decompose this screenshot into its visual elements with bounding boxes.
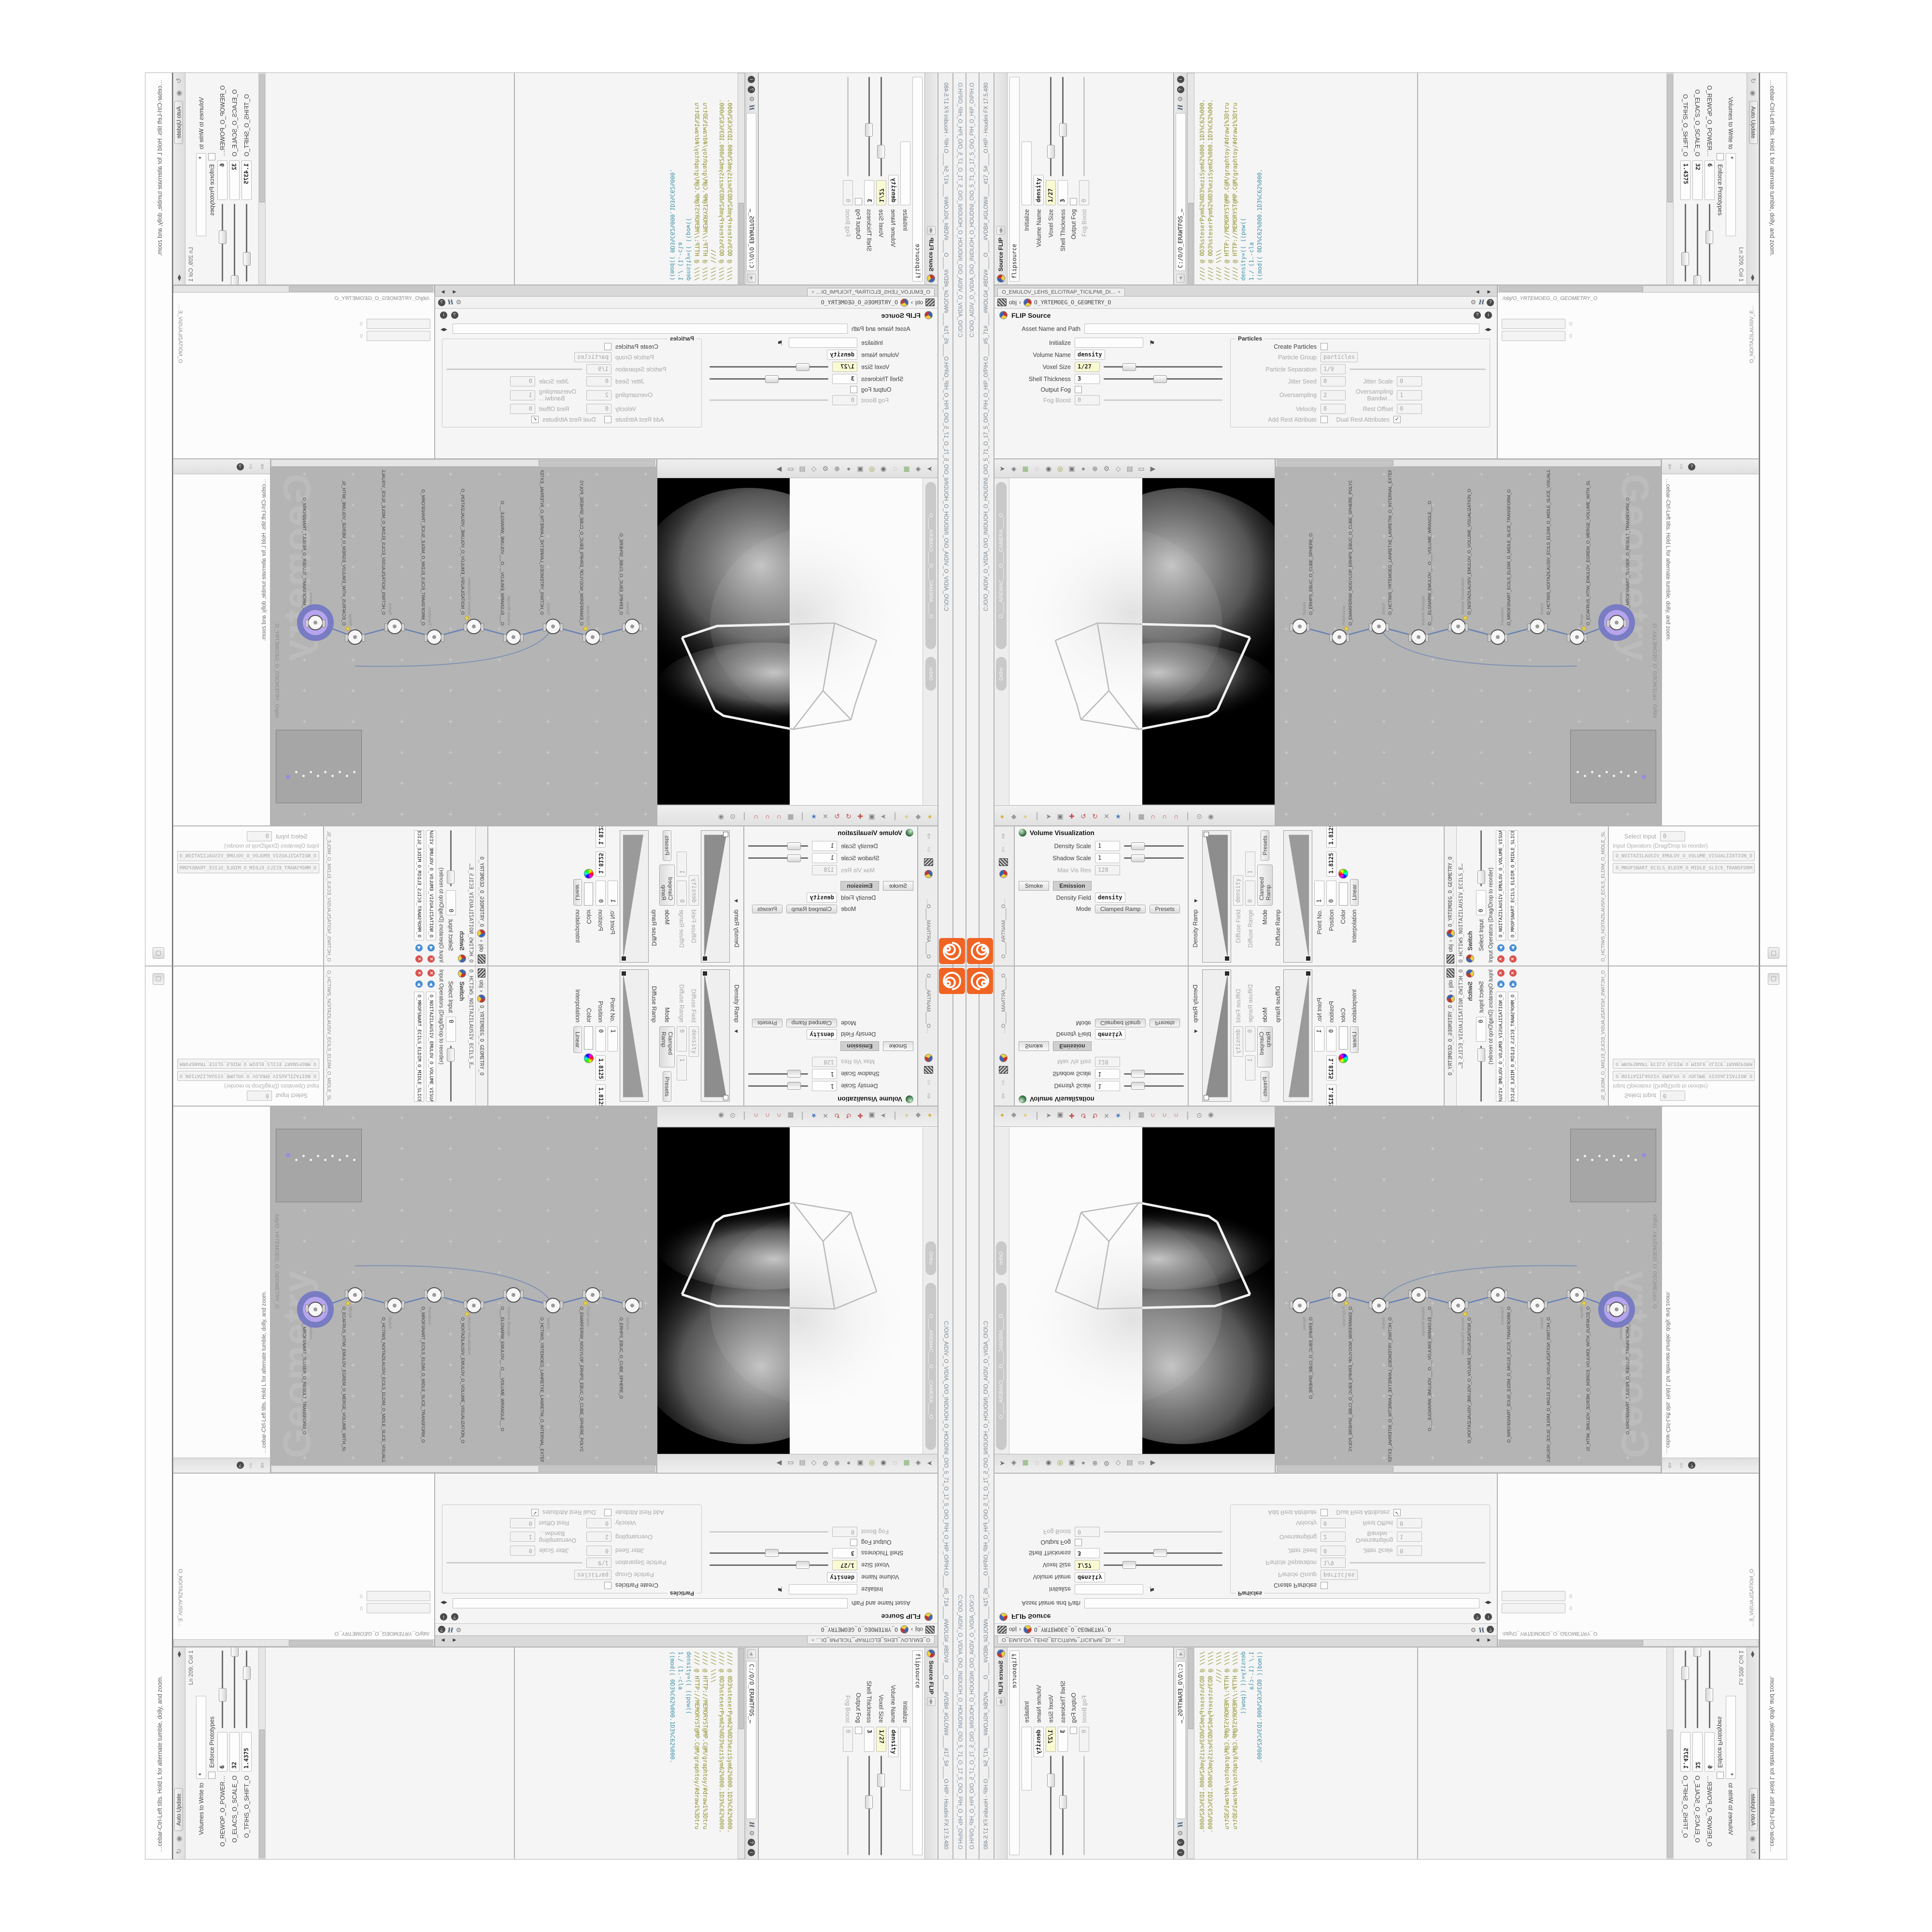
help-icon[interactable]: ?	[1177, 1839, 1184, 1846]
slider-knob[interactable]	[447, 1048, 455, 1062]
network-node[interactable]	[585, 1287, 600, 1303]
tab-flip-pane[interactable]: O_EMULOV_LEHS_ELCITRAP_TICILPMI_DI… ×	[997, 288, 1125, 296]
scroll-right-icon[interactable]: ▸	[1484, 1636, 1494, 1646]
render-region-icon[interactable]: ▭	[786, 464, 796, 473]
switch-input-item[interactable]: O_MROFSNART_ECILS_ELDIM_O_MIDLE_SLICE_TR…	[414, 992, 424, 1102]
lasso-icon[interactable]: ◌	[890, 1459, 900, 1468]
voxel-size-field[interactable]: 1/27	[1075, 1560, 1100, 1570]
info-icon[interactable]: i	[1485, 312, 1492, 319]
diffuse-range-min[interactable]: 0	[677, 1026, 687, 1051]
shade-flat-icon[interactable]: ◆	[1009, 811, 1019, 821]
gear-icon[interactable]: ⚙	[1471, 1626, 1477, 1634]
jump-to-node-button[interactable]: ◀	[427, 944, 435, 952]
diffuse-range-max[interactable]: 1	[677, 852, 687, 877]
point-no-field[interactable]: 1	[1314, 881, 1324, 906]
initialize-field[interactable]	[789, 1584, 857, 1594]
param-value-field[interactable]: 32	[1692, 160, 1703, 200]
param-value-field[interactable]: 6	[1705, 1732, 1715, 1772]
color-wheel-icon[interactable]	[1338, 869, 1348, 879]
tab-flip-pane[interactable]: O_EMULOV_LEHS_ELCITRAP_TICILPMI_DI… ×	[997, 1636, 1125, 1644]
output-fog-checkbox[interactable]	[855, 1727, 862, 1734]
shade-flat-icon[interactable]: ◆	[1009, 1111, 1019, 1121]
snap-magnet-grid-icon[interactable]: ∩	[1171, 1111, 1181, 1121]
pane-scrollbar[interactable]	[258, 1648, 266, 1859]
take-clapper-icon[interactable]	[925, 1626, 935, 1634]
taskbar-path[interactable]: C:\O\O_AIDIV_O_VIDIA_O\O_INIDUOH_O_HOUDI…	[969, 83, 975, 337]
voxel-size-slider[interactable]	[881, 1756, 882, 1855]
tab-mantra-pane[interactable]: O____ARTNAM____O…	[925, 899, 931, 958]
network-node[interactable]	[1411, 629, 1426, 645]
interpolation-dropdown[interactable]: Linear	[1350, 879, 1359, 906]
diamond-handle-icon[interactable]: ◈	[1009, 464, 1019, 473]
cut-tool-icon[interactable]: ✕	[1102, 1111, 1111, 1121]
flipbook-icon[interactable]: ▶	[774, 1459, 784, 1468]
add-sphere-icon[interactable]: ⊕	[832, 1459, 842, 1468]
add-rest-checkbox[interactable]	[1321, 416, 1328, 423]
diffuse-range-min[interactable]: 0	[1245, 881, 1255, 906]
smoke-render-view[interactable]	[657, 478, 923, 805]
move-tool-icon[interactable]: ✚	[1067, 811, 1077, 821]
help-icon[interactable]: ?	[1688, 463, 1695, 470]
diffuse-ramp-widget[interactable]	[620, 969, 649, 1102]
camera-tool-icon[interactable]: ▣	[855, 464, 865, 473]
render-region-icon[interactable]: ▭	[1136, 464, 1146, 473]
tab-flip-pane[interactable]: O_EMULOV_LEHS_ELCITRAP_TICILPMI_DI… ×	[807, 1636, 935, 1644]
fog-boost-field[interactable]: 0	[1075, 1527, 1100, 1537]
tab-vis-pane[interactable]: O_NOITAZILAUSIV_E…	[1749, 305, 1755, 363]
velocity-field[interactable]: 0	[586, 1518, 611, 1528]
output-fog-checkbox[interactable]	[855, 198, 862, 205]
slider-knob[interactable]	[1131, 854, 1145, 862]
network-node[interactable]	[1292, 1298, 1307, 1313]
jitter-seed-field[interactable]: 0	[586, 376, 611, 386]
pane-maximize-icon[interactable]: ▢	[1768, 973, 1779, 985]
snap-magnet-grid-icon[interactable]: ∩	[751, 811, 761, 821]
diamond-handle-icon[interactable]: ◈	[913, 1459, 923, 1468]
select-mode-icon[interactable]: ➤	[879, 1111, 888, 1121]
scroll-left-icon[interactable]: ◂	[1473, 1636, 1482, 1646]
back-icon[interactable]: ◂	[1176, 274, 1185, 283]
shade-flat-icon[interactable]: ◆	[913, 811, 923, 821]
color-swatch[interactable]	[584, 1026, 594, 1050]
voxel-size-field[interactable]: 1/27	[832, 1560, 857, 1570]
fog-boost-slider[interactable]	[1104, 1531, 1222, 1533]
diffuse-range-max[interactable]: 1	[677, 1055, 687, 1080]
scroll-right-icon[interactable]: ▸	[438, 286, 448, 296]
diffuse-field-input[interactable]: density	[689, 875, 699, 906]
tab-mantra-pane[interactable]: O____ARTNAM____O…	[1001, 974, 1007, 1033]
ramp-handle[interactable]	[1224, 971, 1230, 976]
network-minimap[interactable]	[1570, 730, 1656, 803]
ramp-handle[interactable]	[1204, 1095, 1209, 1100]
select-input-field[interactable]: 0	[247, 1091, 272, 1101]
probe-icon[interactable]: ◇	[809, 1459, 819, 1468]
network-node[interactable]	[426, 1287, 442, 1303]
param-value-field[interactable]: 6	[1705, 160, 1715, 200]
network-node[interactable]	[1371, 619, 1387, 634]
network-node[interactable]	[387, 1298, 402, 1313]
particle-group-field[interactable]: particles	[574, 352, 611, 362]
color-wheel-icon[interactable]	[584, 869, 594, 879]
switch-input-item[interactable]: O_MROFSNART_ECILS_ELDIM_O_MIDLE_SLICE_TR…	[177, 1059, 319, 1069]
asset-path-field[interactable]	[453, 324, 848, 334]
up-arrow-icon[interactable]: ⇧	[257, 1461, 267, 1470]
network-node[interactable]	[585, 629, 600, 645]
presets-button[interactable]: Presets	[1150, 905, 1180, 913]
switch-input-item[interactable]: O_MROFSNART_ECILS_ELDIM_O_MIDLE_SLICE_TR…	[414, 830, 424, 940]
snap-magnet-prim-icon[interactable]: ∩	[1160, 1111, 1169, 1121]
shade-wire-icon[interactable]: ●	[1021, 1111, 1030, 1121]
param-value-field[interactable]: 1.4375	[1680, 1732, 1690, 1772]
create-particles-checkbox[interactable]	[604, 1582, 611, 1589]
down-arrow-icon[interactable]: ⇩	[998, 845, 1008, 854]
pathbar-node[interactable]: O_YRTEMOEG_O_GEOMETRY_O	[479, 1005, 484, 1075]
point-no-field[interactable]: 1	[1314, 1026, 1324, 1051]
slider-knob[interactable]	[1047, 145, 1055, 158]
network-minimap[interactable]	[276, 730, 362, 803]
param-value-field[interactable]: 32	[1692, 1732, 1703, 1772]
voxel-size-field[interactable]: 1/27	[832, 362, 857, 372]
gear-icon[interactable]: ⚙	[748, 96, 755, 102]
scale-tool-icon[interactable]: ↻	[832, 1111, 842, 1121]
shade-flat-icon[interactable]: ◆	[913, 1111, 923, 1121]
slider-knob[interactable]	[1477, 1048, 1485, 1062]
pathbar-context[interactable]: obj	[1447, 944, 1454, 952]
snap-magnet-point-icon[interactable]: ∩	[1148, 811, 1158, 821]
scale-tool-icon[interactable]: ↻	[832, 811, 842, 821]
slider-knob[interactable]	[787, 842, 801, 850]
particle-separation-field[interactable]: 1/9	[586, 364, 611, 374]
slider-knob[interactable]	[447, 870, 455, 884]
particle-separation-field[interactable]: 1/9	[1321, 1558, 1346, 1568]
density-field-input[interactable]: density	[1095, 893, 1125, 903]
code-scrollbar[interactable]	[738, 1648, 745, 1859]
create-particles-checkbox[interactable]	[1321, 1582, 1328, 1589]
network-path-vertical[interactable]: /obj/O_YRTEMOEG_O_GEOMETRY_O	[1652, 1214, 1658, 1308]
slider-knob[interactable]	[1131, 1082, 1145, 1090]
tab-switch-pane[interactable]: O_HCTIWS_NOITAZILAUSIV_ECILS_ELDIM_O_MID…	[326, 970, 331, 1101]
smoke-render-view[interactable]	[657, 1127, 923, 1454]
network-minimap[interactable]	[1570, 1129, 1656, 1202]
network-node[interactable]	[387, 619, 402, 634]
axis-star-icon[interactable]: ★	[1113, 1111, 1123, 1121]
pane-split-icon[interactable]: ◂▸	[1748, 273, 1758, 283]
auto-update-dropdown[interactable]: Auto Update	[1749, 1788, 1758, 1831]
voxel-size-slider[interactable]	[1104, 1564, 1222, 1566]
gear-icon[interactable]: ⚙	[1177, 96, 1184, 102]
close-icon[interactable]: ×	[811, 289, 814, 295]
tab-vis-pane[interactable]: O_NOITAZILAUSIV_E…	[177, 305, 183, 363]
cut-tool-icon[interactable]: ✕	[821, 1111, 830, 1121]
volume-name-field[interactable]: density	[827, 1572, 857, 1582]
vex-code-block[interactable]: //// @ 0D3%steserPym62%0D3%eziSym62%000.…	[664, 73, 738, 284]
fog-boost-field[interactable]: 0	[832, 395, 857, 405]
code-path-field[interactable]: C:/O/O_ERAWTFOS_…	[1176, 1661, 1186, 1819]
fog-boost-field[interactable]: 0	[832, 1527, 857, 1537]
up-arrow-icon[interactable]: ⇧	[998, 831, 1008, 841]
help-icon[interactable]: ?	[1177, 86, 1184, 93]
slider-knob[interactable]	[787, 1070, 801, 1078]
presets-button[interactable]: Presets	[1150, 1019, 1180, 1027]
move-tool-icon[interactable]: ✚	[1067, 1111, 1077, 1121]
taskbar-path[interactable]: C:\O\O_AIDIV_O_VIDIA_O\O_INIDUOH_O_HOUDI…	[957, 1595, 963, 1849]
up-arrow-icon[interactable]: ⇧	[998, 1091, 1008, 1101]
stepper-icon[interactable]: ◂▸	[1483, 1599, 1493, 1608]
oversampling-field[interactable]: 2	[586, 390, 611, 400]
node-name-input[interactable]: flipsource	[1009, 1650, 1020, 1855]
jump-to-node-button[interactable]: ◀	[1497, 980, 1505, 988]
slider-knob[interactable]	[1477, 870, 1485, 884]
voxel-size-slider[interactable]	[1050, 1756, 1051, 1855]
jitter-scale-field[interactable]: 0	[1397, 1546, 1422, 1556]
position-field[interactable]: 0	[596, 881, 606, 906]
shell-thickness-field[interactable]: 3	[832, 374, 857, 384]
point-no-field[interactable]: 1	[608, 1026, 618, 1051]
pathbar-node[interactable]: O_YRTEMOEG_O_GEOMETRY_O	[821, 299, 898, 306]
camera-menu[interactable]: O____AREMAC____O____CAMERA____O	[996, 482, 1007, 649]
scale-tool-icon[interactable]: ↻	[1090, 811, 1100, 821]
fog-boost-field[interactable]: 0	[843, 1727, 853, 1752]
density-ramp-widget[interactable]	[701, 830, 730, 963]
oversampling-bandwidth-field[interactable]: 1	[510, 1532, 535, 1542]
param-slider[interactable]	[246, 204, 247, 282]
select-mode-icon[interactable]: ➤	[1044, 1111, 1053, 1121]
take-clapper-icon[interactable]	[924, 1066, 934, 1074]
scroll-right-icon[interactable]: ▸	[438, 1636, 448, 1646]
select-input-field[interactable]: 0	[1476, 1017, 1486, 1042]
network-node[interactable]	[1530, 1298, 1545, 1313]
ramp-expand-icon[interactable]: ▾	[1191, 896, 1200, 906]
node-name-input[interactable]: flipsource	[1009, 77, 1020, 282]
density-field-input[interactable]: density	[807, 893, 837, 903]
spiral-sphere-icon[interactable]: ◉	[716, 811, 726, 821]
network-node[interactable]	[308, 615, 323, 630]
code-path-field[interactable]: C:/O/O_ERAWTFOS_…	[1176, 113, 1186, 271]
snap-magnet-prim-icon[interactable]: ∩	[763, 811, 772, 821]
close-icon[interactable]: ×	[1118, 1637, 1121, 1643]
slider-knob[interactable]	[1131, 1070, 1145, 1078]
density-ramp-widget[interactable]	[1202, 969, 1231, 1102]
wrench-icon[interactable]: ⚙	[821, 1459, 830, 1468]
collapse-chevron-icon[interactable]: ◂▸	[996, 1697, 1005, 1706]
param-slider[interactable]	[1697, 204, 1698, 282]
fog-boost-field[interactable]: 0	[1075, 395, 1100, 405]
light-icon[interactable]: ◎	[867, 1459, 877, 1468]
shadow-scale-field[interactable]: 1	[1095, 1069, 1120, 1079]
output-fog-checkbox[interactable]	[850, 1539, 857, 1546]
flipbook-icon[interactable]: ▶	[1148, 1459, 1158, 1468]
mode-dropdown[interactable]: Clamped Ramp	[786, 1019, 837, 1027]
diamond-handle-icon[interactable]: ◈	[1009, 1459, 1019, 1468]
down-arrow-icon[interactable]: ⇩	[246, 1461, 256, 1470]
memory-icon[interactable]: ◉	[174, 1834, 184, 1844]
tab-smoke[interactable]: Smoke	[883, 881, 913, 891]
cut-tool-icon[interactable]: ✕	[821, 811, 830, 821]
snap-magnet-prim-icon[interactable]: ∩	[763, 1111, 772, 1121]
particle-group-field[interactable]: particles	[574, 1570, 611, 1580]
voxel-size-slider[interactable]	[881, 77, 882, 176]
info-icon[interactable]: i	[1177, 76, 1184, 83]
tab-flip-pane[interactable]: O_EMULOV_LEHS_ELCITRAP_TICILPMI_DI… ×	[807, 288, 935, 296]
lasso-icon[interactable]: ◌	[890, 464, 900, 473]
shade-sphere-icon[interactable]: ●	[1079, 464, 1088, 473]
shade-smooth-icon[interactable]: ●	[997, 811, 1007, 821]
network-minimap[interactable]	[276, 1129, 362, 1202]
take-clapper-icon[interactable]	[478, 968, 485, 978]
jitter-scale-field[interactable]: 0	[510, 1546, 535, 1556]
tab-emission[interactable]: Emission	[1053, 881, 1091, 891]
pathbar-context[interactable]: obj	[1447, 980, 1454, 988]
diffuse-range-max[interactable]: 1	[1245, 852, 1255, 877]
disabled-field[interactable]	[367, 319, 430, 329]
pathbar-node[interactable]: O_YRTEMOEG_O_GEOMETRY_O	[821, 1626, 898, 1633]
shell-thickness-field[interactable]: 3	[832, 1548, 857, 1558]
select-input-field[interactable]: 0	[1660, 1091, 1685, 1101]
mode-dropdown[interactable]: Clamped Ramp	[1257, 1026, 1273, 1067]
pathbar-node[interactable]: O_YRTEMOEG_O_GEOMETRY_O	[1448, 857, 1453, 927]
color-swatch[interactable]	[1339, 882, 1348, 906]
network-node[interactable]	[1609, 615, 1624, 630]
network-node[interactable]	[1332, 629, 1347, 645]
secure-select-icon[interactable]: ▣	[1055, 1111, 1065, 1121]
density-scale-field[interactable]: 1	[1095, 1081, 1120, 1091]
switch-input-item[interactable]: O_NOITAZILAUSIV_EMULOV_O_VOLUME_VISUALIZ…	[177, 851, 319, 861]
voxel-size-slider[interactable]	[710, 366, 828, 368]
take-clapper-icon[interactable]	[997, 298, 1007, 306]
snap-magnet-point-icon[interactable]: ∩	[774, 811, 784, 821]
refresh-icon[interactable]: ↻	[174, 1847, 184, 1856]
up-arrow-icon[interactable]: ⇧	[1665, 462, 1675, 471]
shade-sphere-icon[interactable]: ●	[1079, 1459, 1088, 1468]
shell-thickness-field[interactable]: 3	[864, 1727, 874, 1752]
max-vis-res-field[interactable]: 128	[1095, 865, 1120, 875]
switch-input-item[interactable]: O_MROFSNART_ECILS_ELDIM_O_MIDLE_SLICE_TR…	[1508, 830, 1518, 940]
select-arrow-icon[interactable]: ➤	[925, 464, 935, 473]
pathbar-context[interactable]: obj	[1009, 1626, 1017, 1633]
oversampling-field[interactable]: 2	[1321, 390, 1346, 400]
ramp-handle[interactable]	[1204, 832, 1209, 837]
switch-input-item[interactable]: O_NOITAZILAUSIV_EMULOV_O_VOLUME_VISUALIZ…	[1613, 1071, 1755, 1081]
binoculars-icon[interactable]: ⊙	[728, 1111, 738, 1121]
tab-mantra-pane[interactable]: O____ARTNAM____O…	[925, 974, 931, 1033]
houdini-logo-icon[interactable]	[939, 968, 965, 994]
param-slider[interactable]	[1709, 1650, 1710, 1728]
stepper-icon[interactable]: ◂▸	[439, 324, 449, 334]
select-input-field[interactable]: 0	[446, 890, 456, 915]
select-mode-icon[interactable]: ➤	[879, 811, 888, 821]
projection-menu[interactable]: Ortho	[996, 657, 1007, 691]
tab-switch-pane[interactable]: O_HCTIWS_NOITAZILAUSIV_ECILS_ELDIM_O_MID…	[1601, 831, 1606, 962]
jump-to-node-button[interactable]: ◀	[427, 980, 435, 988]
shell-thickness-slider[interactable]	[1104, 1552, 1222, 1554]
point-no-field[interactable]: 1	[608, 881, 618, 906]
select-input-field[interactable]: 0	[247, 831, 272, 841]
pane-scrollbar[interactable]	[173, 285, 434, 293]
create-particles-checkbox[interactable]	[604, 343, 611, 350]
jump-to-node-button[interactable]: ◀	[415, 944, 423, 952]
slider-knob[interactable]	[1153, 1549, 1167, 1557]
shell-thickness-slider[interactable]	[710, 1552, 828, 1554]
density-scale-field[interactable]: 1	[812, 841, 837, 851]
dual-rest-checkbox[interactable]: ✓	[531, 416, 539, 423]
select-input-field[interactable]: 0	[446, 1017, 456, 1042]
color-swatch[interactable]	[584, 882, 594, 906]
houdini-logo-icon[interactable]	[939, 938, 965, 964]
tab-smoke[interactable]: Smoke	[1019, 1041, 1049, 1051]
interpolation-dropdown[interactable]: Linear	[573, 879, 582, 906]
fog-boost-field[interactable]: 0	[1079, 180, 1089, 205]
density-ramp-widget[interactable]	[701, 969, 730, 1102]
voxel-size-slider[interactable]	[1050, 77, 1051, 176]
mode-dropdown[interactable]: Clamped Ramp	[786, 905, 837, 913]
select-arrow-icon[interactable]: ➤	[997, 1459, 1007, 1468]
delete-input-button[interactable]: ×	[415, 955, 423, 963]
binoculars-icon[interactable]: ⊙	[728, 811, 738, 821]
secure-select-icon[interactable]: ▣	[1055, 811, 1065, 821]
help-icon[interactable]: ?	[237, 463, 244, 470]
diffuse-range-max[interactable]: 1	[1245, 1055, 1255, 1080]
add-rest-checkbox[interactable]	[604, 1509, 611, 1516]
disabled-field[interactable]	[367, 1591, 430, 1601]
density-field-input[interactable]: density	[1095, 1029, 1125, 1039]
network-node[interactable]	[1450, 619, 1466, 634]
jump-to-node-button[interactable]: ◀	[1497, 944, 1505, 952]
color-wheel-icon[interactable]	[584, 1053, 594, 1063]
jump-to-node-button[interactable]: ◀	[1509, 980, 1517, 988]
take-clapper-icon[interactable]	[999, 858, 1008, 866]
network-node[interactable]	[466, 619, 482, 634]
interpolation-dropdown[interactable]: Linear	[573, 1026, 582, 1053]
camera-tool-icon[interactable]: ▣	[1067, 1459, 1077, 1468]
pane-maximize-icon[interactable]: ▢	[1768, 947, 1779, 959]
shadow-scale-slider[interactable]	[1124, 1073, 1184, 1075]
jitter-scale-field[interactable]: 0	[510, 376, 535, 386]
select-input-slider[interactable]	[450, 830, 452, 886]
scroll-left-icon[interactable]: ◂	[1473, 286, 1482, 296]
fog-boost-slider[interactable]	[1104, 399, 1222, 401]
max-vis-res-field[interactable]: 128	[1095, 1057, 1120, 1067]
network-node[interactable]	[1371, 1298, 1387, 1313]
down-arrow-icon[interactable]: ⇩	[924, 845, 934, 854]
volume-name-field[interactable]: density	[1034, 175, 1044, 205]
diffuse-ramp-widget[interactable]	[620, 830, 649, 963]
collapse-chevron-icon[interactable]: ◂▸	[927, 226, 936, 235]
particle-separation-field[interactable]: 1/9	[1321, 364, 1346, 374]
velocity-field[interactable]: 0	[1321, 404, 1346, 414]
scroll-right-icon[interactable]: ▸	[1484, 286, 1494, 296]
down-arrow-icon[interactable]: ⇩	[998, 1078, 1008, 1087]
value-field[interactable]: 1.8125	[1326, 826, 1336, 848]
axis-star-icon[interactable]: ★	[809, 811, 819, 821]
help-icon[interactable]: ?	[1688, 1462, 1695, 1469]
presets-button[interactable]: Presets	[1261, 1071, 1269, 1102]
jitter-seed-field[interactable]: 0	[1321, 376, 1346, 386]
shell-thickness-slider[interactable]	[868, 1756, 870, 1855]
spiral-sphere-icon[interactable]: ◉	[1206, 1111, 1216, 1121]
camera-menu[interactable]: O____AREMAC____O____CAMERA____O	[925, 482, 936, 649]
switch-input-item[interactable]: O_MROFSNART_ECILS_ELDIM_O_MIDLE_SLICE_TR…	[1613, 863, 1755, 873]
initialize-field[interactable]	[789, 338, 857, 348]
interpolation-dropdown[interactable]: Linear	[1350, 1026, 1359, 1053]
tab-vis-pane[interactable]: O_NOITAZILAUSIV_E…	[1749, 1569, 1755, 1627]
taskbar-path[interactable]: C:\O\O_AIDIV_O_VIDIA_O\O_INIDUOH_O_HOUDI…	[957, 83, 963, 337]
shade-wire-icon[interactable]: ●	[902, 811, 911, 821]
switch-input-item[interactable]: O_NOITAZILAUSIV_EMULOV_O_VOLUME_VISUALIZ…	[177, 1071, 319, 1081]
tab-emission[interactable]: Emission	[840, 1041, 879, 1051]
density-scale-slider[interactable]	[1124, 1085, 1184, 1087]
network-path-label[interactable]: /obj/O_YRTEMOEG_O_GEOMETRY_O	[173, 1628, 434, 1639]
shadow-scale-field[interactable]: 1	[812, 853, 837, 863]
